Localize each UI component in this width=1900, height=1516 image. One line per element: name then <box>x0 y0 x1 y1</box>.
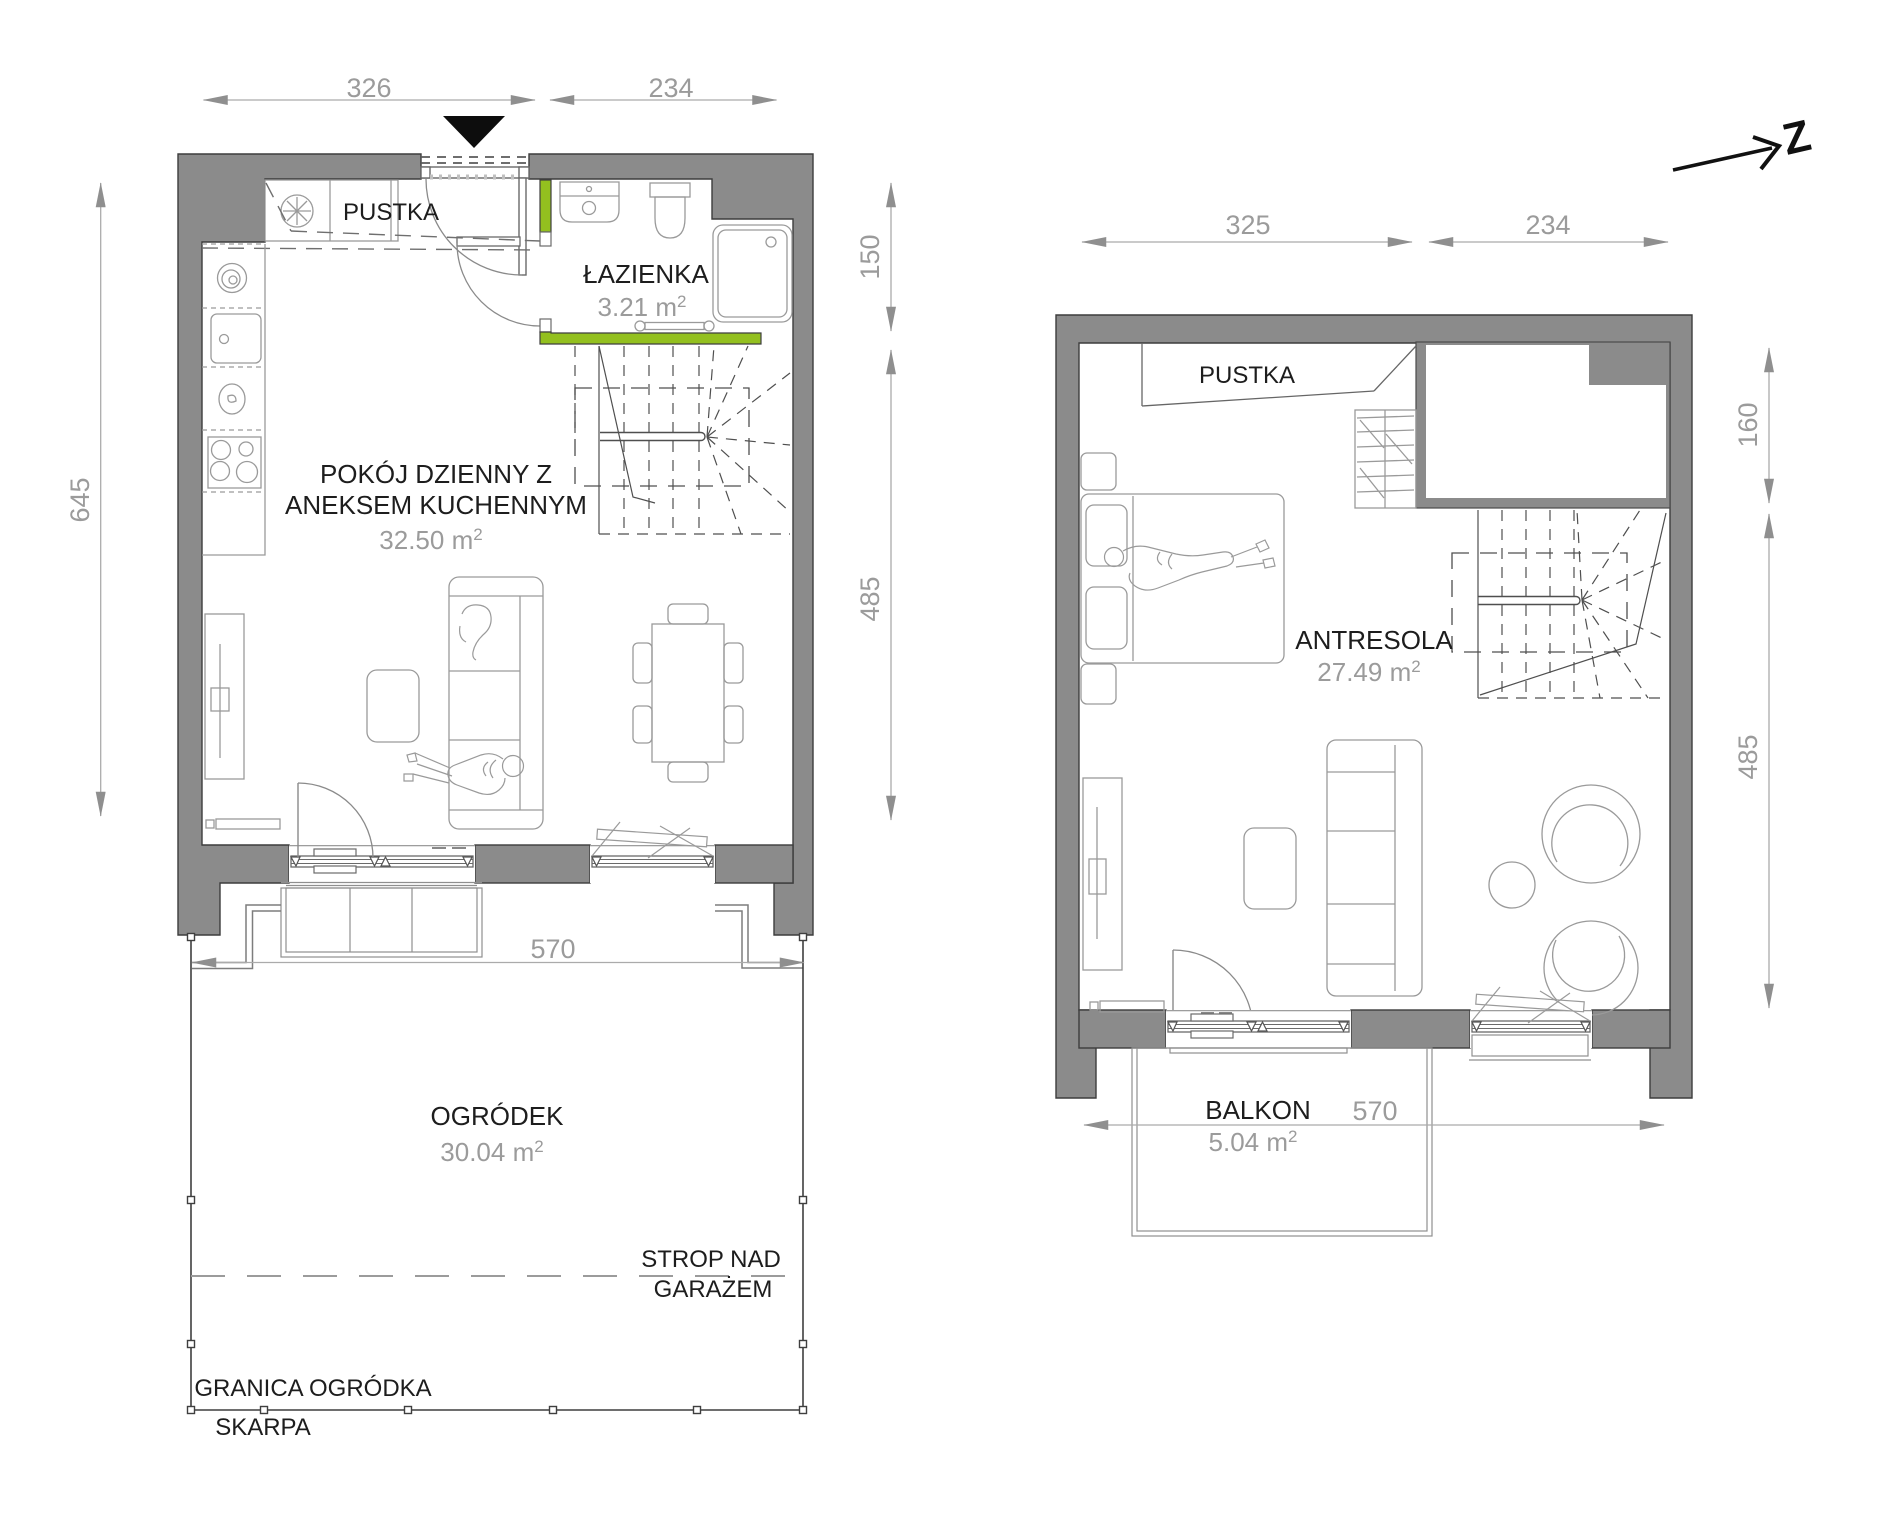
svg-text:STROP NAD: STROP NAD <box>641 1246 781 1273</box>
svg-text:BALKON: BALKON <box>1205 1095 1311 1125</box>
svg-text:645: 645 <box>65 477 95 522</box>
svg-text:325: 325 <box>1225 210 1270 240</box>
svg-text:485: 485 <box>1733 734 1763 779</box>
svg-text:30.04 m2: 30.04 m2 <box>440 1137 543 1167</box>
svg-text:150: 150 <box>855 234 885 279</box>
svg-text:SKARPA: SKARPA <box>215 1414 311 1441</box>
svg-text:570: 570 <box>530 934 575 964</box>
svg-text:ANTRESOLA: ANTRESOLA <box>1295 625 1453 655</box>
svg-text:OGRÓDEK: OGRÓDEK <box>431 1101 565 1131</box>
svg-text:ŁAZIENKA: ŁAZIENKA <box>583 259 709 289</box>
svg-text:GRANICA OGRÓDKA: GRANICA OGRÓDKA <box>194 1375 431 1402</box>
svg-text:234: 234 <box>648 73 693 103</box>
svg-text:POKÓJ DZIENNY Z: POKÓJ DZIENNY Z <box>320 459 552 489</box>
svg-text:234: 234 <box>1525 210 1570 240</box>
svg-text:3.21 m2: 3.21 m2 <box>598 292 687 322</box>
svg-text:PUSTKA: PUSTKA <box>1199 362 1295 389</box>
svg-text:5.04 m2: 5.04 m2 <box>1209 1127 1298 1157</box>
svg-text:27.49 m2: 27.49 m2 <box>1317 657 1420 687</box>
svg-text:ANEKSEM KUCHENNYM: ANEKSEM KUCHENNYM <box>285 490 587 520</box>
svg-text:GARAŻEM: GARAŻEM <box>654 1276 773 1303</box>
svg-text:32.50 m2: 32.50 m2 <box>379 525 482 555</box>
svg-text:PUSTKA: PUSTKA <box>343 199 439 226</box>
svg-text:326: 326 <box>346 73 391 103</box>
svg-text:570: 570 <box>1352 1096 1397 1126</box>
svg-text:485: 485 <box>855 576 885 621</box>
svg-text:160: 160 <box>1733 402 1763 447</box>
